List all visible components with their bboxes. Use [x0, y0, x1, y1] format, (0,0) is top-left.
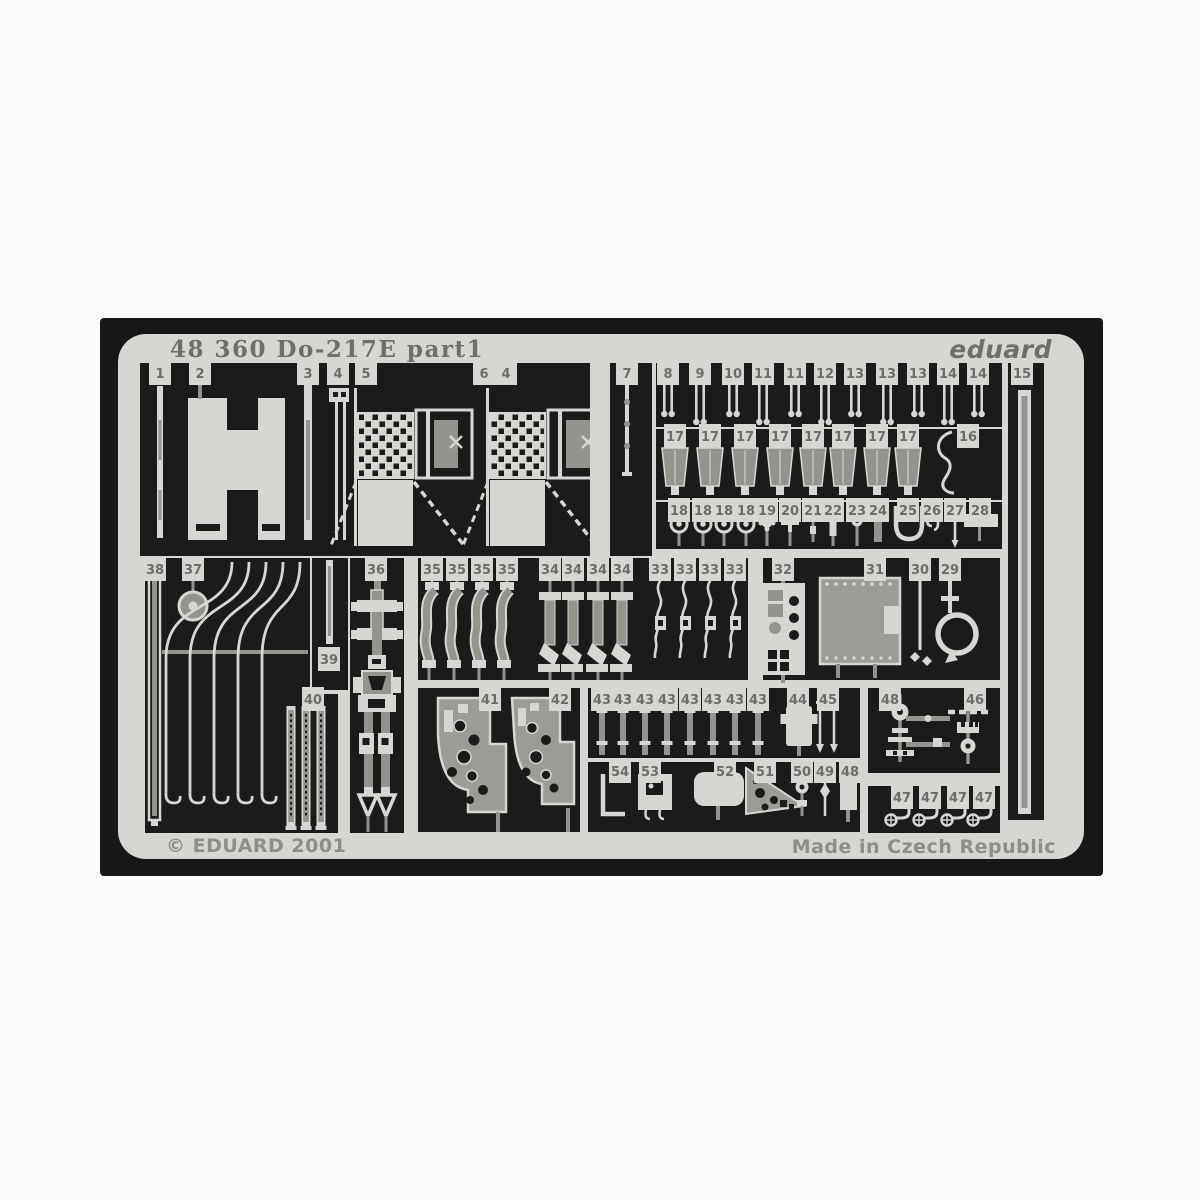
part-tab-43: 43: [679, 687, 701, 711]
wire-crossbar: [162, 650, 308, 654]
part-40: [301, 706, 312, 830]
part-40: [286, 706, 297, 830]
part-tab-17: 17: [664, 424, 686, 448]
part-tab-43: 43: [591, 687, 613, 711]
part-tab-35: 35: [446, 557, 468, 581]
svg-text:22: 22: [824, 504, 842, 519]
svg-text:36: 36: [367, 563, 385, 578]
svg-text:43: 43: [593, 693, 611, 708]
part-tab-35: 35: [421, 557, 443, 581]
svg-text:18: 18: [737, 504, 755, 519]
brand-logo: eduard: [949, 335, 1052, 364]
part-tab-33: 33: [649, 557, 671, 581]
svg-text:8: 8: [663, 367, 672, 382]
part-tab-3: 3: [297, 361, 319, 385]
svg-text:47: 47: [975, 791, 993, 806]
svg-text:14: 14: [969, 367, 987, 382]
part-tab-9: 9: [689, 361, 711, 385]
svg-text:18: 18: [694, 504, 712, 519]
svg-text:4: 4: [501, 367, 510, 382]
svg-text:34: 34: [564, 563, 582, 578]
svg-text:5: 5: [361, 367, 370, 382]
part-tab-41: 41: [479, 687, 501, 711]
part-tab-47: 47: [891, 785, 913, 809]
svg-text:38: 38: [146, 563, 164, 578]
svg-text:1: 1: [155, 367, 164, 382]
part-tab-39: 39: [318, 647, 340, 671]
part-tab-43: 43: [634, 687, 656, 711]
part-tab-2: 2: [189, 361, 211, 385]
part-tab-18: 18: [692, 498, 714, 522]
svg-text:48: 48: [841, 765, 859, 780]
part-tab-21: 21: [802, 498, 824, 522]
part-tab-11: 11: [784, 361, 806, 385]
svg-text:17: 17: [899, 430, 917, 445]
part-tab-4: 4: [495, 361, 517, 385]
part-tab-19: 19: [756, 498, 778, 522]
svg-text:43: 43: [614, 693, 632, 708]
svg-text:46: 46: [966, 693, 984, 708]
svg-text:17: 17: [771, 430, 789, 445]
svg-text:35: 35: [448, 563, 466, 578]
part-tab-35: 35: [496, 557, 518, 581]
part-tab-47: 47: [973, 785, 995, 809]
svg-text:47: 47: [921, 791, 939, 806]
part-tab-36: 36: [365, 557, 387, 581]
part-tab-32: 32: [772, 557, 794, 581]
part-tab-6: 6: [473, 361, 495, 385]
svg-text:19: 19: [758, 504, 776, 519]
part-tab-24: 24: [867, 498, 889, 522]
svg-text:37: 37: [184, 563, 202, 578]
svg-text:2: 2: [195, 367, 204, 382]
part-tab-42: 42: [549, 687, 571, 711]
svg-text:14: 14: [939, 367, 957, 382]
part-tab-48: 48: [879, 687, 901, 711]
svg-text:53: 53: [641, 765, 659, 780]
svg-text:23: 23: [848, 504, 866, 519]
part-tab-50: 50: [791, 759, 813, 783]
part-31: [820, 570, 900, 678]
part-tab-27: 27: [944, 498, 966, 522]
svg-text:17: 17: [701, 430, 719, 445]
part-tab-51: 51: [754, 759, 776, 783]
svg-text:33: 33: [676, 563, 694, 578]
svg-text:43: 43: [704, 693, 722, 708]
part-tab-30: 30: [909, 557, 931, 581]
svg-text:47: 47: [893, 791, 911, 806]
svg-text:17: 17: [736, 430, 754, 445]
svg-text:47: 47: [949, 791, 967, 806]
svg-text:17: 17: [834, 430, 852, 445]
part-tab-18: 18: [713, 498, 735, 522]
part-tab-45: 45: [817, 687, 839, 711]
svg-text:6: 6: [479, 367, 488, 382]
part-tab-34: 34: [611, 557, 633, 581]
sheet-title: 48 360 Do-217E part1: [170, 336, 484, 363]
svg-text:25: 25: [899, 504, 917, 519]
part-tab-17: 17: [832, 424, 854, 448]
part-tab-14: 14: [937, 361, 959, 385]
part-tab-16: 16: [957, 424, 979, 448]
part-2: [188, 381, 285, 540]
part-tab-38: 38: [144, 557, 166, 581]
made-in-text: Made in Czech Republic: [792, 836, 1056, 858]
part-tab-46: 46: [964, 687, 986, 711]
part-tab-7: 7: [616, 361, 638, 385]
svg-text:21: 21: [804, 504, 822, 519]
part-tab-25: 25: [897, 498, 919, 522]
svg-text:43: 43: [636, 693, 654, 708]
part-tab-28: 28: [969, 498, 991, 522]
svg-text:32: 32: [774, 563, 792, 578]
part-tab-1: 1: [149, 361, 171, 385]
svg-text:43: 43: [749, 693, 767, 708]
svg-text:43: 43: [658, 693, 676, 708]
svg-text:17: 17: [666, 430, 684, 445]
part-tab-37: 37: [182, 557, 204, 581]
part-tab-53: 53: [639, 759, 661, 783]
part-tab-22: 22: [822, 498, 844, 522]
part-tab-40: 40: [302, 687, 324, 711]
part-tab-17: 17: [699, 424, 721, 448]
svg-text:11: 11: [786, 367, 804, 382]
part-tab-13: 13: [876, 361, 898, 385]
part-tab-17: 17: [866, 424, 888, 448]
svg-text:11: 11: [754, 367, 772, 382]
part-tab-29: 29: [939, 557, 961, 581]
svg-text:16: 16: [959, 430, 977, 445]
part-3: [304, 384, 312, 540]
part-39: [326, 560, 333, 644]
svg-text:50: 50: [793, 765, 811, 780]
part-tab-47: 47: [947, 785, 969, 809]
svg-text:12: 12: [816, 367, 834, 382]
svg-text:15: 15: [1013, 367, 1031, 382]
svg-text:7: 7: [622, 367, 631, 382]
svg-text:54: 54: [611, 765, 629, 780]
part-32: [763, 570, 805, 683]
part-40: [316, 706, 327, 830]
part-15: [1018, 390, 1031, 814]
part-tab-43: 43: [656, 687, 678, 711]
svg-text:31: 31: [866, 563, 884, 578]
part-tab-33: 33: [674, 557, 696, 581]
part-tab-17: 17: [769, 424, 791, 448]
svg-text:13: 13: [846, 367, 864, 382]
svg-text:34: 34: [613, 563, 631, 578]
part-tab-34: 34: [539, 557, 561, 581]
svg-text:34: 34: [589, 563, 607, 578]
svg-text:35: 35: [498, 563, 516, 578]
part-tab-47: 47: [919, 785, 941, 809]
part-tab-14: 14: [967, 361, 989, 385]
svg-text:41: 41: [481, 693, 499, 708]
part-tab-8: 8: [657, 361, 679, 385]
part-tab-26: 26: [921, 498, 943, 522]
svg-text:18: 18: [715, 504, 733, 519]
svg-text:44: 44: [789, 693, 807, 708]
part-tab-17: 17: [897, 424, 919, 448]
svg-text:13: 13: [878, 367, 896, 382]
svg-text:27: 27: [946, 504, 964, 519]
svg-text:48: 48: [881, 693, 899, 708]
part-tab-13: 13: [844, 361, 866, 385]
part-tab-10: 10: [722, 361, 744, 385]
part-tab-43: 43: [702, 687, 724, 711]
svg-text:26: 26: [923, 504, 941, 519]
svg-text:35: 35: [423, 563, 441, 578]
part-tab-54: 54: [609, 759, 631, 783]
part-tab-43: 43: [612, 687, 634, 711]
part-tab-48: 48: [839, 759, 861, 783]
part-tab-34: 34: [587, 557, 609, 581]
part-tab-33: 33: [699, 557, 721, 581]
part-1: [157, 386, 163, 538]
svg-text:49: 49: [816, 765, 834, 780]
svg-text:35: 35: [473, 563, 491, 578]
svg-text:24: 24: [869, 504, 887, 519]
svg-text:30: 30: [911, 563, 929, 578]
svg-text:9: 9: [695, 367, 704, 382]
svg-text:28: 28: [971, 504, 989, 519]
svg-text:10: 10: [724, 367, 742, 382]
part-tab-23: 23: [846, 498, 868, 522]
svg-text:17: 17: [804, 430, 822, 445]
svg-text:40: 40: [304, 693, 322, 708]
part-tab-43: 43: [724, 687, 746, 711]
part-tab-12: 12: [814, 361, 836, 385]
svg-text:51: 51: [756, 765, 774, 780]
svg-text:52: 52: [716, 765, 734, 780]
part-tab-44: 44: [787, 687, 809, 711]
photoetch-product-photo: 1234564789101111121313131414151717171717…: [0, 0, 1200, 1200]
svg-text:43: 43: [681, 693, 699, 708]
part-tab-17: 17: [734, 424, 756, 448]
part-tab-17: 17: [802, 424, 824, 448]
part-tab-43: 43: [747, 687, 769, 711]
part-tab-20: 20: [779, 498, 801, 522]
svg-text:13: 13: [909, 367, 927, 382]
svg-text:39: 39: [320, 653, 338, 668]
part-tab-18: 18: [668, 498, 690, 522]
part-tab-33: 33: [724, 557, 746, 581]
part-tab-35: 35: [471, 557, 493, 581]
photoetch-sheet-svg: 1234564789101111121313131414151717171717…: [0, 0, 1200, 1200]
part-tab-4: 4: [327, 361, 349, 385]
part-tab-34: 34: [562, 557, 584, 581]
svg-text:20: 20: [781, 504, 799, 519]
part-tab-15: 15: [1011, 361, 1033, 385]
part-tab-49: 49: [814, 759, 836, 783]
part-tab-13: 13: [907, 361, 929, 385]
svg-text:4: 4: [333, 367, 342, 382]
svg-text:33: 33: [701, 563, 719, 578]
svg-text:18: 18: [670, 504, 688, 519]
svg-text:17: 17: [868, 430, 886, 445]
part-tab-18: 18: [735, 498, 757, 522]
svg-text:45: 45: [819, 693, 837, 708]
copyright-text: © EDUARD 2001: [166, 835, 346, 857]
svg-text:29: 29: [941, 563, 959, 578]
part-tab-52: 52: [714, 759, 736, 783]
svg-text:34: 34: [541, 563, 559, 578]
part-tab-5: 5: [355, 361, 377, 385]
part-tab-11: 11: [752, 361, 774, 385]
svg-text:42: 42: [551, 693, 569, 708]
svg-text:33: 33: [651, 563, 669, 578]
svg-text:43: 43: [726, 693, 744, 708]
svg-text:33: 33: [726, 563, 744, 578]
svg-text:3: 3: [303, 367, 312, 382]
part-tab-31: 31: [864, 557, 886, 581]
